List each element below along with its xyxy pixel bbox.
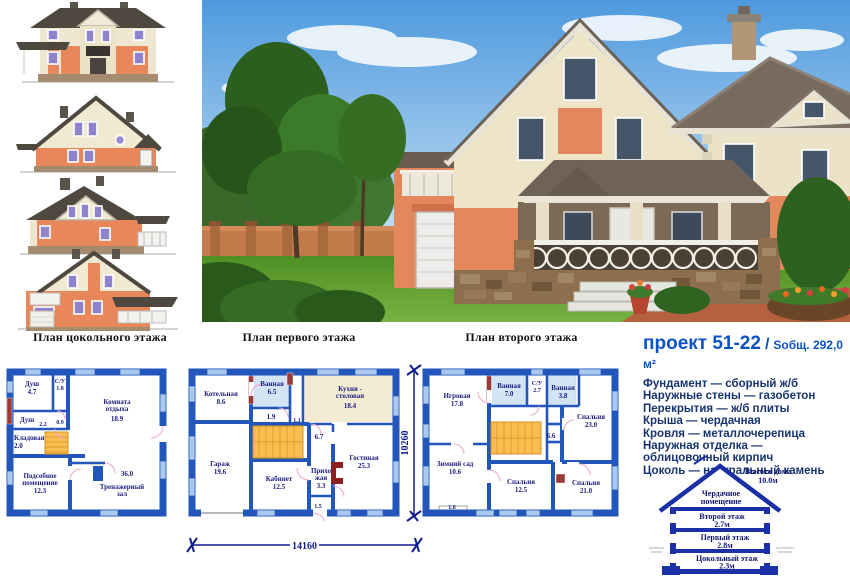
- project-title-row: проект 51-22 / Sобщ. 292,0 м²: [643, 333, 850, 373]
- room-label: Ванная: [497, 382, 521, 390]
- svg-text:0.9: 0.9: [56, 420, 64, 426]
- room-label: Кабинет: [266, 475, 293, 483]
- fireplace: [331, 462, 343, 484]
- room-label: Ванная: [260, 380, 284, 388]
- room-label: Игровая: [444, 392, 471, 400]
- room-label: Ванная: [551, 384, 575, 392]
- room-label: Гараж: [210, 460, 231, 468]
- elevation-rear: [8, 249, 188, 337]
- svg-text:10260: 10260: [400, 431, 411, 456]
- svg-text:17.8: 17.8: [451, 400, 464, 408]
- svg-text:23.0: 23.0: [585, 421, 598, 429]
- house-photo: [202, 0, 850, 322]
- svg-text:1.6: 1.6: [448, 505, 456, 511]
- room-label: С/У: [55, 379, 66, 385]
- svg-text:6.7: 6.7: [315, 433, 324, 441]
- room-label: Душ: [20, 416, 34, 424]
- floor-plan-second: Игровая 17.8 Ванная 7.0 С/У 2.7 Ванная 3…: [421, 366, 621, 521]
- room-label: Котельная: [204, 390, 238, 398]
- svg-text:18.4: 18.4: [344, 402, 357, 410]
- porch: [518, 160, 770, 280]
- svg-text:1.8: 1.8: [56, 386, 64, 392]
- svg-text:21.0: 21.0: [580, 487, 593, 495]
- svg-text:12.3: 12.3: [34, 487, 47, 495]
- svg-text:1.1: 1.1: [293, 418, 301, 424]
- gable-window: [564, 58, 596, 100]
- dimension-width: 14160: [182, 532, 427, 558]
- project-sheet: План цокольного этажа План первого этажа…: [0, 0, 850, 581]
- vent-shaft: [287, 373, 293, 385]
- svg-text:помещение: помещение: [701, 497, 742, 506]
- svg-text:3.3: 3.3: [317, 482, 326, 490]
- svg-text:3.8: 3.8: [559, 392, 568, 400]
- room-label: Спальня: [577, 413, 605, 421]
- vent-shaft: [556, 474, 565, 483]
- room-label: Спальня: [572, 479, 600, 487]
- footing: [662, 566, 680, 575]
- room-label: Зимний сад: [437, 460, 474, 468]
- svg-text:жая: жая: [315, 474, 328, 482]
- caption-first-floor-plan: План первого этажа: [213, 330, 385, 345]
- room-labels: Душ 4.7 С/У 1.8 Душ 2.2 0.9 Кладовая 2.0…: [14, 379, 144, 498]
- elevation-front: [8, 2, 188, 90]
- stairs: [45, 432, 68, 454]
- room-label: С/У: [532, 381, 543, 387]
- svg-text:7.0: 7.0: [505, 390, 514, 398]
- spec-item: Крыша — чердачная: [643, 415, 850, 427]
- svg-text:14160: 14160: [292, 541, 317, 552]
- room-label: Кладовая: [14, 434, 45, 442]
- svg-text:помещение: помещение: [22, 479, 57, 487]
- svg-text:1.5: 1.5: [314, 504, 322, 510]
- caption-second-floor-plan: План второго этажа: [434, 330, 609, 345]
- svg-text:8.6: 8.6: [217, 398, 226, 406]
- svg-text:12.5: 12.5: [273, 483, 286, 491]
- spec-item: Кровля — металлочерепица: [643, 428, 850, 440]
- stairs: [491, 422, 541, 454]
- room-label: Спальня: [507, 478, 535, 486]
- svg-text:12.5: 12.5: [515, 486, 528, 494]
- elevation-side-left: [8, 92, 188, 180]
- project-title: проект 51-22: [643, 333, 761, 354]
- svg-text:18.9: 18.9: [111, 415, 124, 423]
- spec-item: Наружные стены — газобетон: [643, 390, 850, 402]
- svg-text:отдыха: отдыха: [106, 405, 129, 413]
- stairs: [253, 426, 303, 458]
- svg-text:1.9: 1.9: [267, 413, 276, 421]
- column: [93, 466, 103, 481]
- spec-item: Перекрытия — ж/б плиты: [643, 403, 850, 415]
- svg-text:10.6: 10.6: [449, 468, 462, 476]
- svg-text:19.6: 19.6: [214, 468, 227, 476]
- svg-text:25.3: 25.3: [358, 462, 371, 470]
- room-label: Гостиная: [349, 454, 378, 462]
- flower-bed: [767, 286, 850, 321]
- svg-text:2.8м: 2.8м: [717, 541, 733, 550]
- dimension-depth: 10260: [400, 358, 426, 528]
- svg-text:зал: зал: [117, 490, 127, 498]
- house-height-label: Высота дома: [745, 467, 791, 476]
- svg-text:6.6: 6.6: [547, 432, 556, 440]
- room-label: Душ: [25, 380, 39, 388]
- svg-text:2.7: 2.7: [533, 388, 541, 394]
- svg-text:2.3м: 2.3м: [719, 562, 735, 571]
- chimney: [732, 20, 756, 60]
- house-section: Высота дома 10.0м Чердачное помещение Вт…: [648, 452, 808, 581]
- title-separator: /: [765, 336, 769, 353]
- floor-plan-first: Котельная 8.6 Ванная 6.5 Кухня - столова…: [187, 366, 402, 521]
- svg-text:2.0: 2.0: [14, 442, 23, 450]
- svg-text:36.0: 36.0: [121, 470, 134, 478]
- vent-shaft: [7, 398, 12, 424]
- svg-text:10.0м: 10.0м: [758, 476, 778, 485]
- svg-text:столовая: столовая: [336, 392, 364, 400]
- svg-text:6.5: 6.5: [268, 388, 277, 396]
- caption-basement-plan: План цокольного этажа: [15, 330, 185, 345]
- svg-text:4.7: 4.7: [28, 388, 37, 396]
- footing: [760, 566, 778, 575]
- spec-item: Фундамент — сборный ж/б: [643, 378, 850, 390]
- svg-text:2.2: 2.2: [39, 422, 47, 428]
- floor-plan-basement: Душ 4.7 С/У 1.8 Душ 2.2 0.9 Кладовая 2.0…: [5, 366, 170, 521]
- svg-text:2.7м: 2.7м: [714, 520, 730, 529]
